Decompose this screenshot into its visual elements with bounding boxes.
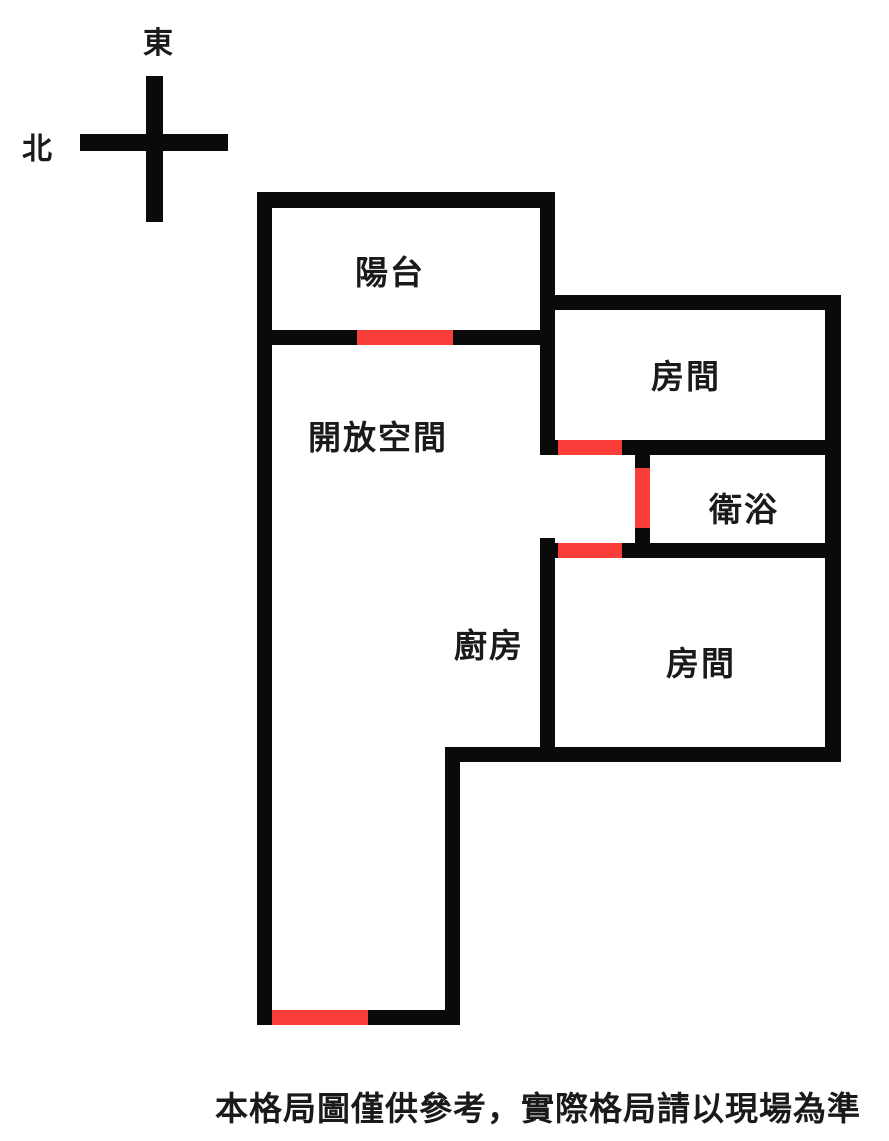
compass-north-label: 北 <box>22 124 52 168</box>
compass-east-label: 東 <box>143 18 173 62</box>
room-label-bedroom-top: 房間 <box>651 350 721 398</box>
door-marker-bathroom <box>635 468 650 528</box>
door-marker-bedroom-top <box>558 440 622 455</box>
wall-outer-right <box>825 295 841 762</box>
wall-balcony-top <box>257 192 555 208</box>
wall-lower-right <box>445 747 460 1025</box>
door-marker-bedroom-bottom <box>558 543 622 558</box>
wall-bedroom-bottom-floor <box>445 747 841 762</box>
disclaimer-text: 本格局圖僅供參考，實際格局請以現場為準 <box>215 1082 861 1130</box>
room-label-bathroom: 衛浴 <box>709 483 779 531</box>
room-label-open-space: 開放空間 <box>308 411 448 459</box>
wall-divider-lower <box>540 538 555 762</box>
wall-bedroom-top-ceiling <box>540 295 841 310</box>
wall-outer-left <box>257 192 272 1025</box>
room-label-balcony: 陽台 <box>355 246 425 294</box>
room-label-bedroom-bottom: 房間 <box>666 637 736 685</box>
wall-divider-upper <box>540 192 555 455</box>
door-marker-entrance <box>272 1010 368 1025</box>
door-marker-balcony <box>357 330 453 345</box>
room-label-kitchen: 廚房 <box>454 619 524 667</box>
compass-cross-horizontal-bar <box>80 134 228 151</box>
floor-plan-canvas: 東 北 陽台 開放空間 房間 衛浴 廚房 房間 本格局圖僅供參考，實際格局請以現… <box>0 0 889 1141</box>
